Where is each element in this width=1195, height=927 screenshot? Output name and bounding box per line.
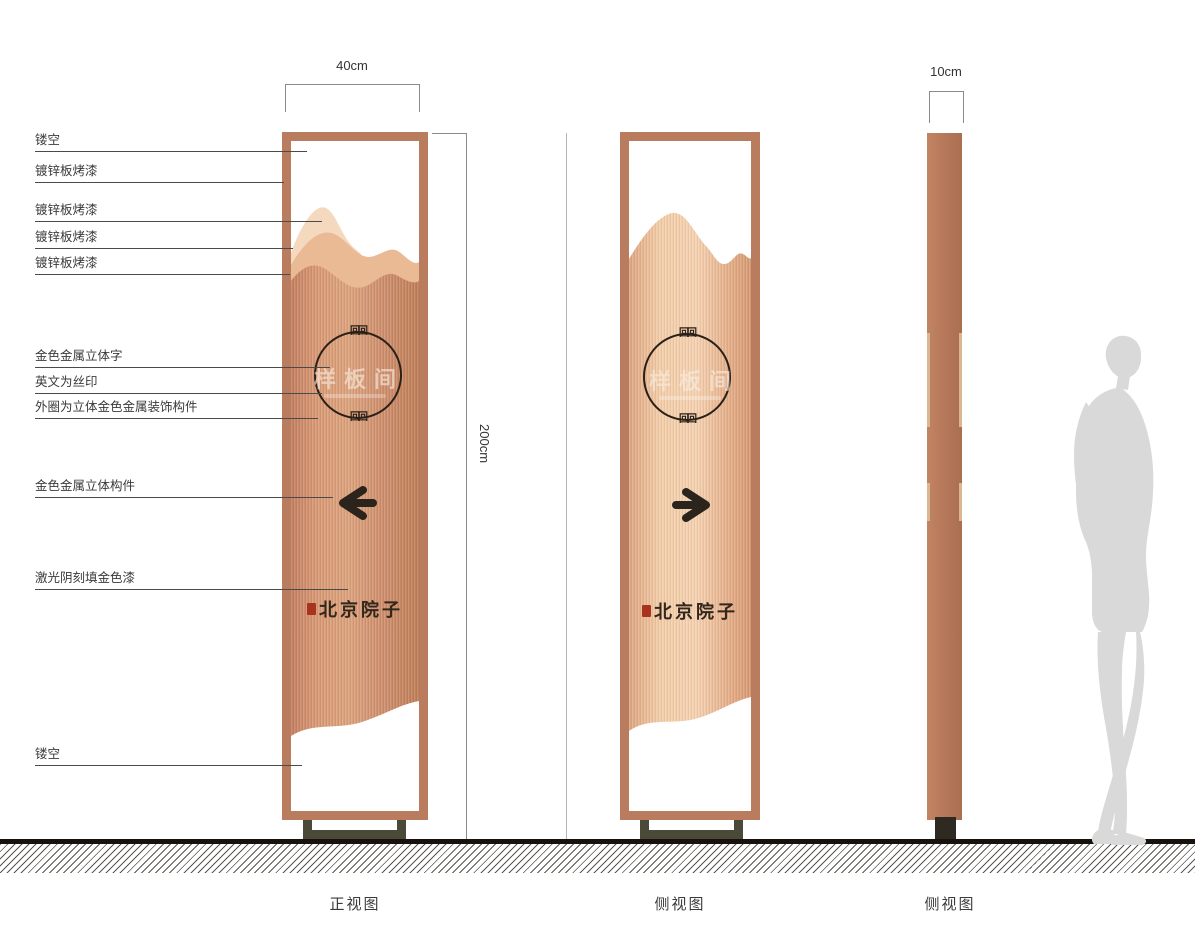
callout-label: 激光阴刻填金色漆	[35, 571, 135, 585]
brand-name-text: 北京院子	[654, 598, 738, 624]
silkscreen-english-text	[659, 396, 721, 400]
meander-ornament-icon: 回回	[679, 415, 695, 425]
callout-gold-letters: 金色金属立体字	[35, 348, 330, 368]
room-name-text: 样板间	[629, 364, 751, 396]
seal-stamp-icon	[307, 603, 316, 615]
profile-view-panel	[927, 133, 962, 820]
ground-hatch	[0, 844, 1195, 873]
callout-hollow-bottom: 镂空	[35, 746, 302, 766]
caption-side-view: 侧视图	[610, 893, 750, 914]
dim-depth-label: 10cm	[914, 64, 978, 79]
callout-gold-component: 金色金属立体构件	[35, 478, 333, 498]
callout-label: 镀锌板烤漆	[35, 230, 98, 244]
callout-galvanized-1: 镀锌板烤漆	[35, 163, 284, 183]
seal-stamp-icon	[642, 605, 651, 617]
callout-label: 镀锌板烤漆	[35, 164, 98, 178]
brushed-copper-body	[629, 141, 751, 811]
edge-fitting-strip	[927, 483, 930, 521]
callout-galvanized-2: 镀锌板烤漆	[35, 202, 322, 222]
caption-front-view: 正视图	[282, 893, 428, 914]
dim-width-bracket	[285, 84, 420, 112]
dim-height-label: 200cm	[477, 424, 492, 463]
meander-ornament-icon: 回回	[679, 329, 695, 339]
front-panel-face: 回回 回回 样板间 北京院子	[291, 141, 419, 811]
view-separator-line	[566, 133, 567, 840]
brand-logo: 北京院子	[629, 598, 751, 624]
arrow-left-icon	[335, 485, 379, 521]
callout-laser-engrave: 激光阴刻填金色漆	[35, 570, 348, 590]
callout-label: 金色金属立体字	[35, 349, 123, 363]
arrow-right-icon	[670, 487, 714, 523]
brand-name-text: 北京院子	[319, 596, 403, 622]
dim-height-tick	[432, 133, 466, 134]
meander-ornament-icon: 回回	[350, 327, 366, 337]
front-view-panel: 回回 回回 样板间 北京院子	[282, 132, 428, 820]
callout-galvanized-3: 镀锌板烤漆	[35, 229, 293, 249]
callout-label: 外圈为立体金色金属装饰构件	[35, 400, 198, 414]
side-panel-face: 回回 回回 样板间 北京院子	[629, 141, 751, 811]
dim-depth-bracket	[929, 91, 964, 123]
brand-logo: 北京院子	[291, 596, 419, 622]
callout-label: 镀锌板烤漆	[35, 256, 98, 270]
signage-design-sheet: 镂空 镀锌板烤漆 镀锌板烤漆 镀锌板烤漆 镀锌板烤漆 金色金属立体字 英文为丝印…	[0, 0, 1195, 927]
callout-label: 镂空	[35, 747, 60, 761]
callout-english-silkscreen: 英文为丝印	[35, 374, 322, 394]
callout-label: 镀锌板烤漆	[35, 203, 98, 217]
callout-hollow-top: 镂空	[35, 132, 307, 152]
side-view-panel: 回回 回回 样板间 北京院子	[620, 132, 760, 820]
dim-height-line	[466, 133, 467, 840]
callout-outer-ring: 外圈为立体金色金属装饰构件	[35, 399, 318, 419]
silkscreen-english-text	[324, 394, 386, 398]
callout-label: 金色金属立体构件	[35, 479, 135, 493]
callout-label: 镂空	[35, 133, 60, 147]
edge-fitting-strip	[959, 333, 962, 427]
edge-fitting-strip	[927, 333, 930, 427]
callout-label: 英文为丝印	[35, 375, 98, 389]
edge-fitting-strip	[959, 483, 962, 521]
dim-width-label: 40cm	[285, 58, 419, 73]
meander-ornament-icon: 回回	[350, 413, 366, 423]
person-silhouette	[1042, 332, 1184, 846]
caption-profile-view: 侧视图	[885, 893, 1015, 914]
callout-galvanized-4: 镀锌板烤漆	[35, 255, 290, 275]
